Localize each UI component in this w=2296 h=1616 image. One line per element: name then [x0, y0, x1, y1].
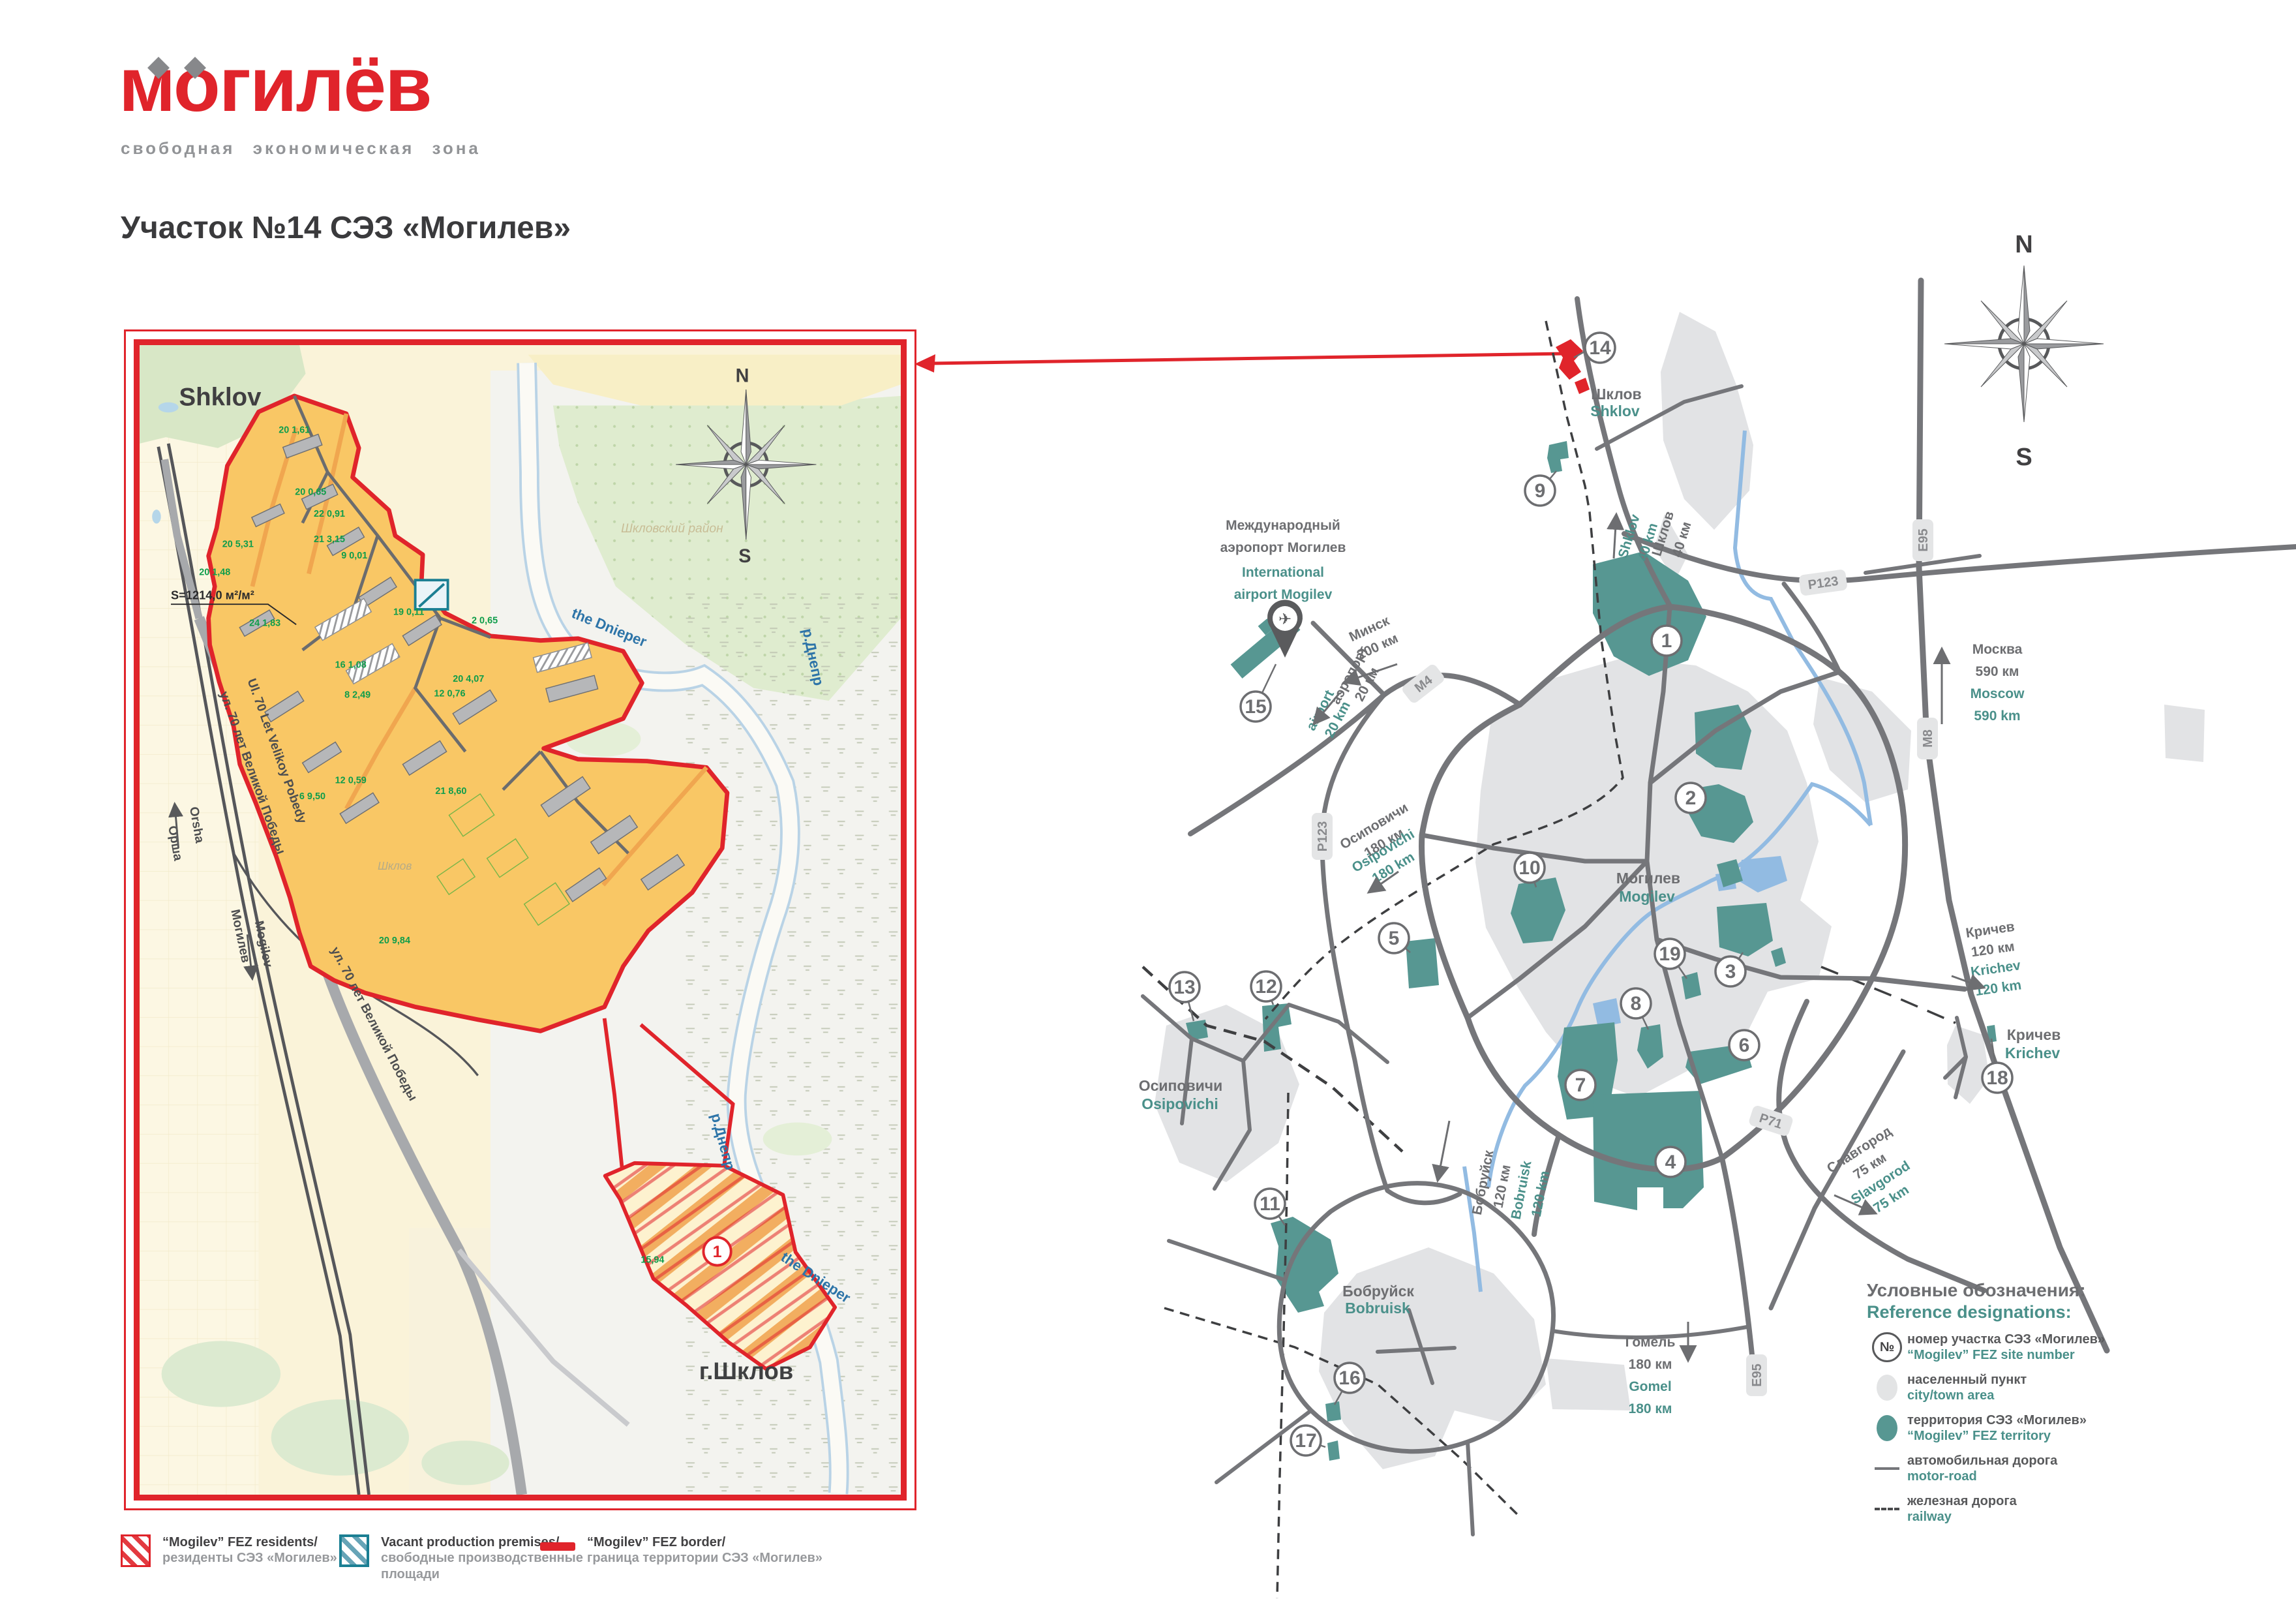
svg-text:180 км: 180 км [1629, 1357, 1672, 1372]
compass-rose: N S [1941, 219, 2110, 473]
svg-text:16: 16 [1338, 1367, 1360, 1389]
svg-text:21 3,15: 21 3,15 [314, 534, 345, 545]
svg-text:airport Mogilev: airport Mogilev [1234, 587, 1333, 602]
svg-text:24 1,83: 24 1,83 [249, 618, 280, 628]
svg-text:120 км: 120 км [1490, 1163, 1513, 1209]
svg-text:2 0,65: 2 0,65 [472, 615, 498, 626]
svg-text:6: 6 [1739, 1035, 1750, 1056]
svg-text:19: 19 [1659, 943, 1680, 965]
label-shklov-bottom: г.Шклов [699, 1358, 793, 1384]
legend-fez-border: “Mogilev” FEZ border/ граница территории… [540, 1534, 823, 1566]
svg-text:Е95: Е95 [1916, 528, 1931, 552]
svg-text:17: 17 [1295, 1430, 1316, 1452]
svg-text:6 9,50: 6 9,50 [299, 791, 325, 802]
detail-map-frame: 20 1,61 20 0,65 22 0,91 21 3,15 9 0,01 2… [124, 329, 916, 1510]
svg-text:12 0,76: 12 0,76 [434, 688, 465, 699]
svg-text:20 1,48: 20 1,48 [199, 567, 230, 577]
svg-text:М8: М8 [1921, 729, 1935, 748]
town-area-icon [1877, 1375, 1897, 1401]
plane-icon: ✈ [1278, 611, 1291, 628]
reference-legend: Условные обозначения: Reference designat… [1867, 1280, 2271, 1525]
svg-text:20 4,07: 20 4,07 [453, 674, 484, 684]
svg-text:Москва: Москва [1972, 642, 2023, 657]
svg-text:Шклов: Шклов [1591, 386, 1641, 403]
svg-text:Бобруйск: Бобруйск [1342, 1283, 1414, 1300]
svg-text:11: 11 [1260, 1193, 1280, 1215]
svg-text:20 0,65: 20 0,65 [295, 487, 326, 498]
svg-text:International: International [1242, 565, 1324, 580]
svg-text:S: S [738, 546, 751, 567]
svg-text:9: 9 [1535, 480, 1546, 502]
airport-marker: ✈ [1223, 600, 1303, 678]
svg-text:аэропорт Могилев: аэропорт Могилев [1220, 540, 1346, 555]
fez-border-swatch [540, 1542, 575, 1551]
svg-text:590 км: 590 км [1976, 664, 2019, 679]
svg-text:20 5,31: 20 5,31 [222, 539, 254, 549]
svg-text:Осиповичи: Осиповичи [1139, 1077, 1223, 1094]
svg-text:Могилев: Могилев [1616, 870, 1680, 887]
svg-text:N: N [2015, 231, 2032, 258]
svg-text:Е95: Е95 [1750, 1364, 1764, 1387]
legend-item-motor-road: автомобильная дорога motor-road [1867, 1453, 2271, 1484]
svg-text:5: 5 [1389, 928, 1400, 949]
label-shklov-top: Shklov [179, 383, 262, 411]
svg-text:14: 14 [1589, 337, 1611, 359]
svg-text:S=1214,0 м²/м²: S=1214,0 м²/м² [171, 588, 254, 602]
svg-text:7: 7 [1575, 1075, 1586, 1096]
svg-text:9 0,01: 9 0,01 [341, 551, 367, 561]
railway-icon [1875, 1508, 1899, 1510]
legend-item-town-area: населенный пункт city/town area [1867, 1372, 2271, 1403]
svg-text:Osipovichi: Osipovichi [1141, 1095, 1218, 1112]
svg-text:8: 8 [1631, 993, 1642, 1014]
svg-text:Gomel: Gomel [1629, 1379, 1671, 1394]
svg-text:12: 12 [1255, 976, 1276, 998]
legend-title-ru: Условные обозначения: [1867, 1280, 2271, 1301]
svg-text:16 1,08: 16 1,08 [335, 660, 367, 670]
vacant-premises-marker [415, 580, 448, 609]
svg-text:120 км: 120 км [1971, 939, 2016, 960]
svg-text:12 0,59: 12 0,59 [335, 776, 367, 786]
logo-subtitle: свободная экономическая зона [121, 138, 481, 159]
label-district: Шкловский район [621, 521, 723, 536]
motor-road-icon [1875, 1467, 1899, 1470]
page-title: Участок №14 СЭЗ «Могилев» [121, 210, 571, 246]
svg-text:10: 10 [1518, 857, 1540, 879]
svg-text:Международный: Международный [1226, 518, 1340, 533]
svg-text:180 км: 180 км [1629, 1401, 1672, 1416]
site-1-number: 1 [703, 1238, 731, 1266]
svg-text:N: N [736, 365, 749, 386]
svg-text:S: S [2016, 444, 2032, 471]
svg-text:8 2,49: 8 2,49 [344, 690, 370, 700]
pond [159, 403, 179, 413]
vacant-premises-swatch [339, 1534, 369, 1567]
svg-text:15: 15 [1245, 696, 1266, 718]
svg-text:1: 1 [1661, 630, 1672, 652]
svg-text:120 km: 120 km [1974, 977, 2023, 999]
label-town-inline: Шклов [378, 859, 412, 872]
svg-text:22 0,91: 22 0,91 [314, 509, 345, 519]
svg-text:Mogilev: Mogilev [1619, 888, 1675, 905]
svg-text:Moscow: Moscow [1971, 686, 2025, 701]
svg-text:Кричев: Кричев [1965, 919, 2016, 941]
legend-item-railway: железная дорога railway [1867, 1493, 2271, 1525]
svg-text:590 km: 590 km [1974, 709, 2020, 724]
svg-text:15,94: 15,94 [641, 1255, 664, 1266]
fez-territory-icon [1877, 1415, 1897, 1441]
svg-text:Р123: Р123 [1316, 821, 1330, 852]
legend-item-site-number: № номер участка СЭЗ «Могилев» “Mogilev” … [1867, 1332, 2271, 1363]
airport-labels: Международный аэропорт Могилев Internati… [1220, 518, 1346, 602]
svg-text:1: 1 [713, 1243, 722, 1261]
site-number-icon: № [1872, 1332, 1902, 1362]
detail-map: 20 1,61 20 0,65 22 0,91 21 3,15 9 0,01 2… [140, 345, 901, 1495]
svg-text:Гомель: Гомель [1625, 1335, 1676, 1350]
svg-text:Krichev: Krichev [1970, 958, 2022, 980]
svg-text:3: 3 [1725, 961, 1736, 983]
legend-item-fez-territory: территория СЭЗ «Могилев» “Mogilev” FEZ t… [1867, 1412, 2271, 1444]
svg-text:2: 2 [1685, 787, 1697, 809]
legend-fez-residents: “Mogilev” FEZ residents/ резиденты СЭЗ «… [121, 1534, 337, 1567]
svg-text:13: 13 [1173, 977, 1195, 998]
svg-text:18: 18 [1986, 1067, 2008, 1089]
svg-text:19 0,11: 19 0,11 [393, 607, 424, 618]
svg-text:Krichev: Krichev [2005, 1044, 2061, 1061]
page: могилёв свободная экономическая зона Уча… [0, 0, 2296, 1616]
logo: могилёв [119, 40, 431, 129]
svg-text:21 8,60: 21 8,60 [435, 786, 466, 797]
svg-text:20 9,84: 20 9,84 [379, 936, 410, 946]
svg-text:Bobruisk: Bobruisk [1345, 1300, 1410, 1317]
legend-title-en: Reference designations: [1867, 1302, 2271, 1322]
svg-text:4: 4 [1665, 1151, 1676, 1173]
svg-text:Кричев: Кричев [2007, 1026, 2061, 1043]
svg-text:120 km: 120 km [1529, 1170, 1552, 1218]
fez-residents-swatch [121, 1534, 151, 1567]
svg-text:Shklov: Shklov [1590, 403, 1640, 419]
svg-text:20 1,61: 20 1,61 [279, 425, 310, 435]
